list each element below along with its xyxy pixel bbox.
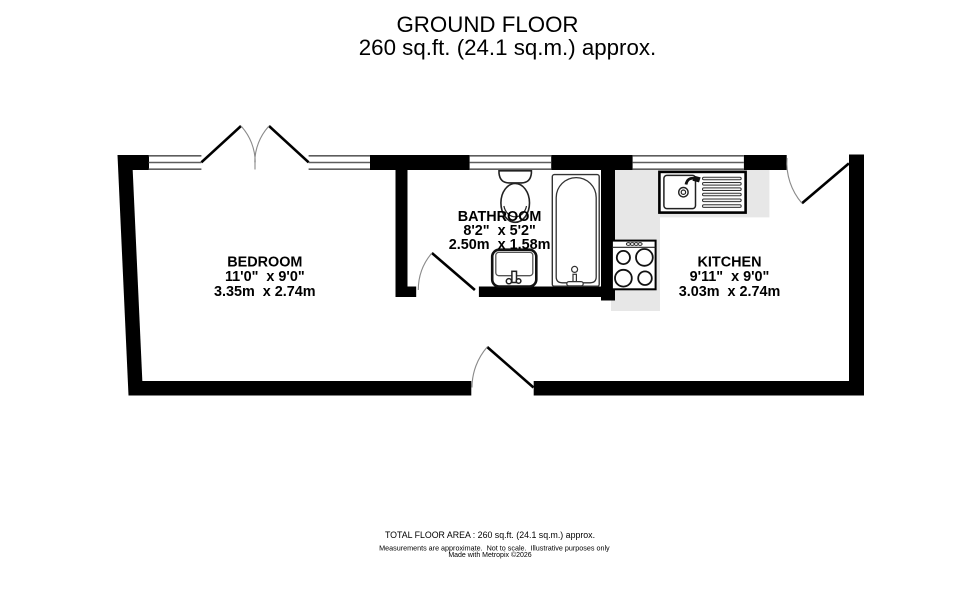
svg-text:Made with Metropix ©2026: Made with Metropix ©2026 xyxy=(448,551,531,559)
svg-text:GROUND FLOOR: GROUND FLOOR xyxy=(396,12,578,37)
svg-text:3.35m x 2.74m: 3.35m x 2.74m xyxy=(214,284,316,300)
svg-text:TOTAL FLOOR AREA : 260 sq.ft.: TOTAL FLOOR AREA : 260 sq.ft. (24.1 sq.m… xyxy=(385,530,595,540)
svg-text:9'11" x 9'0": 9'11" x 9'0" xyxy=(690,269,770,285)
svg-text:3.03m x 2.74m: 3.03m x 2.74m xyxy=(679,284,781,300)
svg-text:11'0" x 9'0": 11'0" x 9'0" xyxy=(225,269,305,285)
svg-text:260 sq.ft. (24.1 sq.m.) approx: 260 sq.ft. (24.1 sq.m.) approx. xyxy=(359,35,656,60)
svg-text:2.50m x 1.58m: 2.50m x 1.58m xyxy=(449,237,551,253)
